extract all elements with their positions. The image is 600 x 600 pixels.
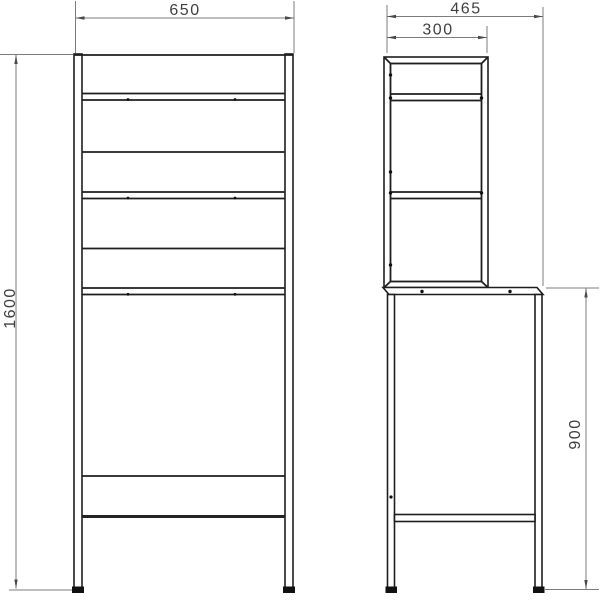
side-tabletop-slab: [383, 288, 543, 295]
arrowhead-top: [584, 289, 587, 298]
connector-dot: [127, 197, 130, 200]
connector-dot: [234, 98, 237, 101]
connector-dot: [234, 293, 237, 296]
front-left-foot: [73, 587, 84, 593]
front-height-label: 1600: [2, 287, 19, 329]
connector-dot: [389, 495, 392, 498]
front-left-post: [74, 54, 82, 590]
arrowhead-right: [478, 36, 487, 39]
arrowhead-left: [387, 15, 396, 18]
side-front-leg: [388, 295, 395, 590]
connector-dot: [389, 73, 392, 76]
front-view: [73, 54, 295, 593]
side-rear-foot: [534, 587, 545, 593]
front-right-foot: [284, 587, 295, 593]
dimension-lower-height: 900: [545, 288, 599, 590]
arrowhead-bottom: [14, 580, 17, 589]
side-lower-rail: [395, 515, 536, 522]
furniture-dimension-drawing: 650 1600 465 300 900: [0, 0, 600, 600]
connector-dot: [508, 290, 511, 293]
lower-height-label: 900: [567, 418, 584, 449]
dimension-front-width: 650: [76, 1, 295, 53]
connector-dot: [420, 290, 423, 293]
arrowhead-left: [387, 36, 396, 39]
connector-dot: [389, 263, 392, 266]
side-front-foot: [386, 587, 397, 593]
side-tower-outer-frame: [384, 57, 488, 288]
connector-dot: [389, 96, 392, 99]
side-depth-label: 465: [450, 1, 481, 18]
technical-drawing-canvas: 650 1600 465 300 900: [0, 0, 600, 600]
dimension-shelf-depth: 300: [387, 22, 487, 54]
arrowhead-right: [285, 16, 294, 19]
front-right-post: [285, 54, 293, 590]
connector-dot: [389, 191, 392, 194]
side-rear-leg: [535, 295, 542, 590]
arrowhead-top: [14, 55, 17, 64]
connector-dot: [127, 98, 130, 101]
side-view: [383, 57, 544, 593]
arrowhead-left: [76, 16, 85, 19]
connector-dot: [480, 96, 483, 99]
front-width-label: 650: [169, 2, 200, 19]
arrowhead-right: [534, 15, 543, 18]
arrowhead-bottom: [584, 580, 587, 589]
connector-dot: [127, 293, 130, 296]
dimension-front-height: 1600: [0, 55, 73, 591]
connector-dot: [234, 197, 237, 200]
connector-dot: [389, 170, 392, 173]
connector-dot: [480, 191, 483, 194]
shelf-depth-label: 300: [422, 22, 453, 39]
